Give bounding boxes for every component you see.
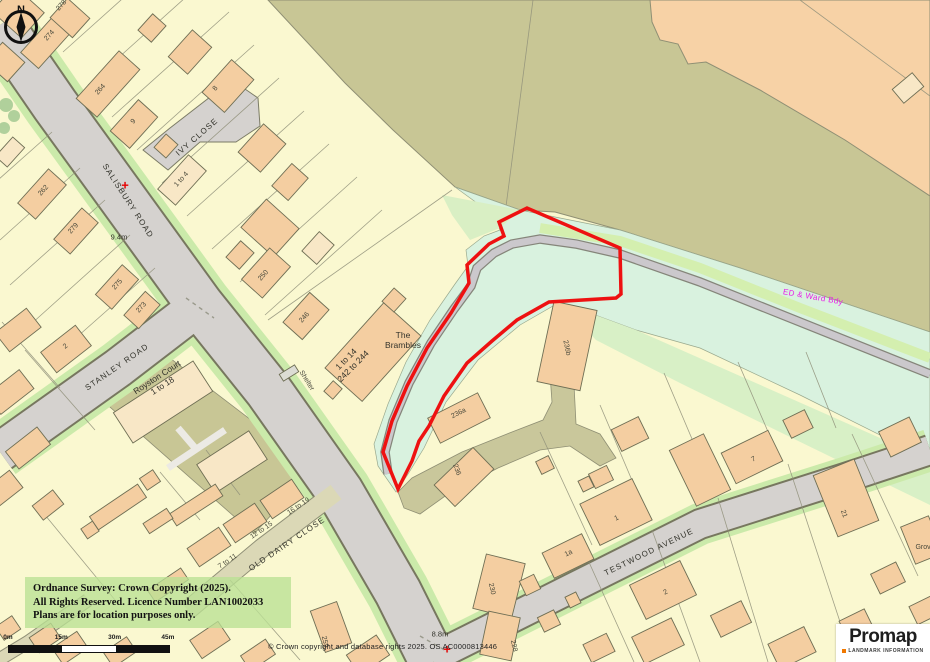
map-viewport: N SALISBURY ROADSTANLEY ROADIVY CLOSEOLD… bbox=[0, 0, 930, 662]
os-credit-line: © Crown copyright and database rights 20… bbox=[268, 642, 497, 651]
scale-tick-label: 30m bbox=[108, 634, 121, 641]
scale-tick-label: 15m bbox=[55, 634, 68, 641]
copyright-line-2: All Rights Reserved. Licence Number LAN1… bbox=[33, 596, 283, 610]
promap-brand-text: Promap bbox=[836, 627, 930, 646]
promap-logo: Promap LANDMARK INFORMATION bbox=[836, 624, 930, 662]
landmark-subtitle-text: LANDMARK INFORMATION bbox=[848, 648, 923, 654]
copyright-box: Ordnance Survey: Crown Copyright (2025).… bbox=[25, 577, 291, 628]
scale-segment bbox=[116, 646, 169, 652]
scale-tick-label: 0m bbox=[3, 634, 12, 641]
scale-bar: 0m15m30m45m bbox=[8, 634, 178, 658]
landmark-bullet-icon bbox=[842, 649, 846, 653]
scale-tick-label: 45m bbox=[161, 634, 174, 641]
landmark-subtitle-row: LANDMARK INFORMATION bbox=[836, 648, 930, 654]
copyright-line-3: Plans are for location purposes only. bbox=[33, 609, 283, 623]
scale-strip bbox=[8, 645, 170, 653]
scale-segment bbox=[9, 646, 62, 652]
copyright-line-1: Ordnance Survey: Crown Copyright (2025). bbox=[33, 582, 283, 596]
compass-north-letter: N bbox=[17, 4, 25, 16]
map-canvas[interactable]: N bbox=[0, 0, 930, 662]
scale-segment bbox=[62, 646, 115, 652]
